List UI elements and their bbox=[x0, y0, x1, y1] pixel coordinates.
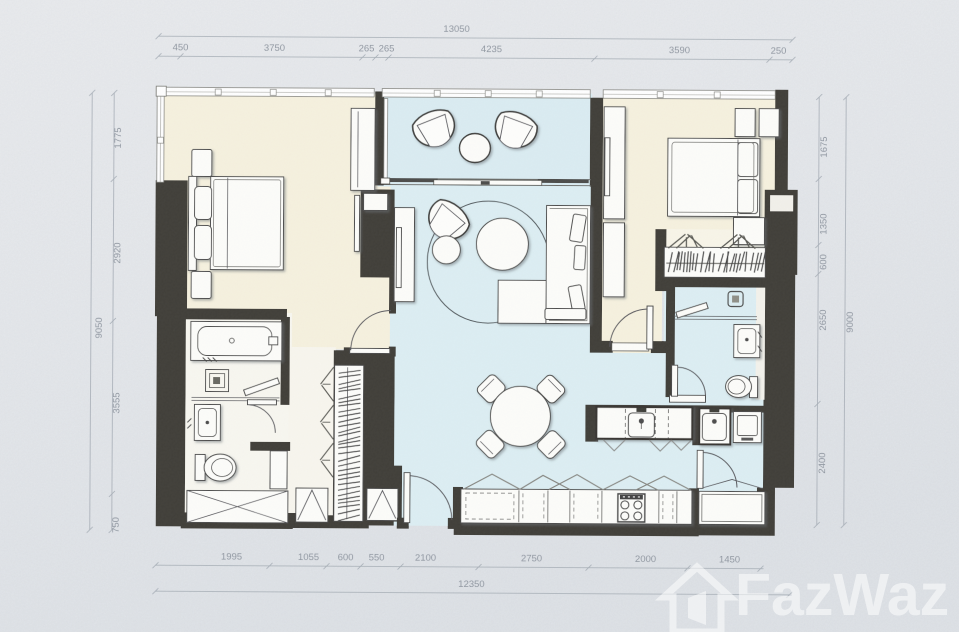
svg-text:FazWaz: FazWaz bbox=[735, 562, 949, 628]
